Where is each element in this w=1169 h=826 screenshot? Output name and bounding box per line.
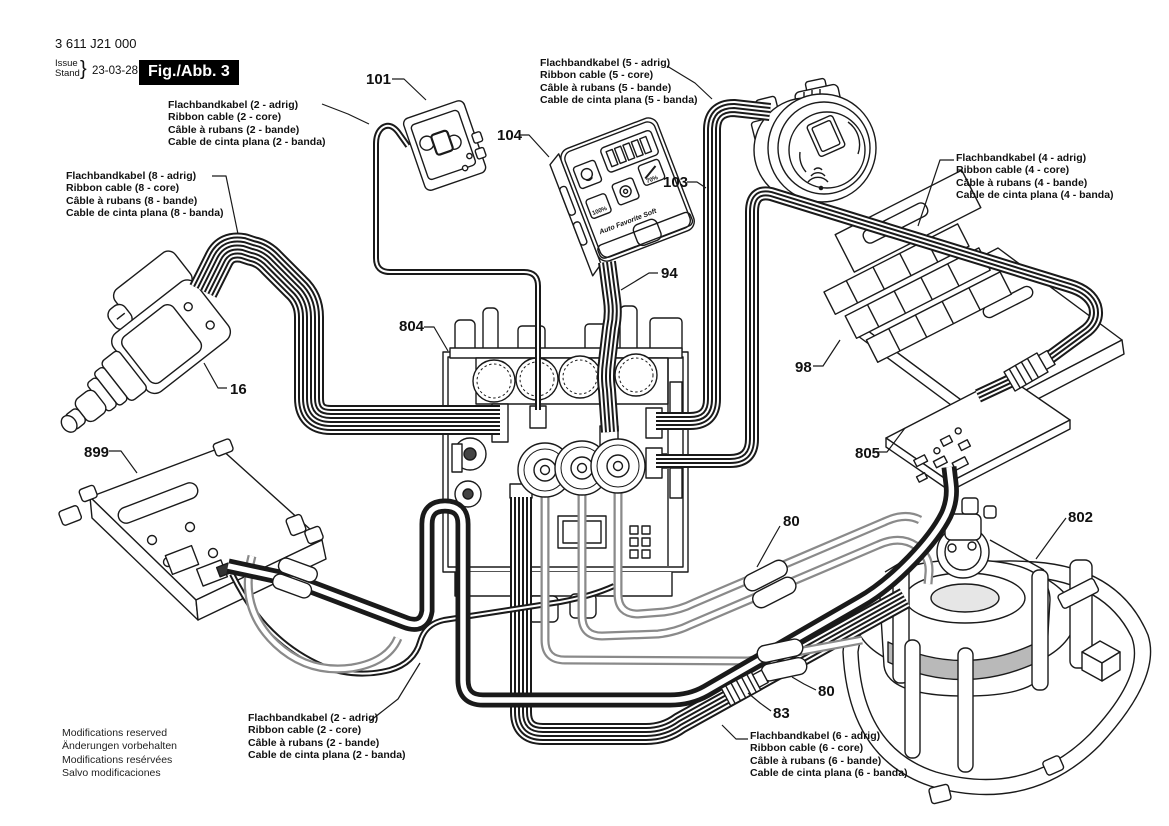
switch-bracket <box>803 170 1124 428</box>
dial-module <box>751 78 876 202</box>
callout-802: 802 <box>1068 509 1093 526</box>
board-knobs <box>518 439 645 497</box>
cable-label-8core: Flachbandkabel (8 - adrig) Ribbon cable … <box>66 170 224 220</box>
callout-804: 804 <box>399 318 424 335</box>
callout-98: 98 <box>795 359 812 376</box>
callout-899: 899 <box>84 444 109 461</box>
callout-101: 101 <box>366 71 391 88</box>
issue-date: 23-03-28 <box>92 65 138 77</box>
callout-16: 16 <box>230 381 247 398</box>
figure-label: Fig./Abb. 3 <box>139 60 239 85</box>
cable-label-6core: Flachbandkabel (6 - adrig) Ribbon cable … <box>750 730 908 780</box>
cable-label-5core: Flachbandkabel (5 - adrig) Ribbon cable … <box>540 57 698 107</box>
cable-label-2core-bottom: Flachbandkabel (2 - adrig) Ribbon cable … <box>248 712 406 762</box>
ribbon-cable-5core-94 <box>606 262 613 432</box>
cable-label-2core-top: Flachbandkabel (2 - adrig) Ribbon cable … <box>168 99 326 149</box>
callout-104: 104 <box>497 127 522 144</box>
issue-stand-label: Issue Stand <box>55 59 80 80</box>
callout-805: 805 <box>855 445 880 462</box>
callout-80-upper: 80 <box>783 513 800 530</box>
document-part-number: 3 611 J21 000 <box>55 36 136 51</box>
callout-83: 83 <box>773 705 790 722</box>
callout-94: 94 <box>661 265 678 282</box>
callout-80-lower: 80 <box>818 683 835 700</box>
modifications-note: Modifications reserved Änderungen vorbeh… <box>62 727 177 780</box>
remote-control: 100% 70% Auto Favorite Soft <box>547 115 700 276</box>
brace: } <box>80 58 87 81</box>
diagram-page: 100% 70% Auto Favorite Soft <box>0 0 1169 826</box>
callout-103: 103 <box>663 174 688 191</box>
mounting-plate <box>58 438 326 620</box>
cable-label-4core: Flachbandkabel (4 - adrig) Ribbon cable … <box>956 152 1114 202</box>
switch-plate <box>402 97 493 192</box>
